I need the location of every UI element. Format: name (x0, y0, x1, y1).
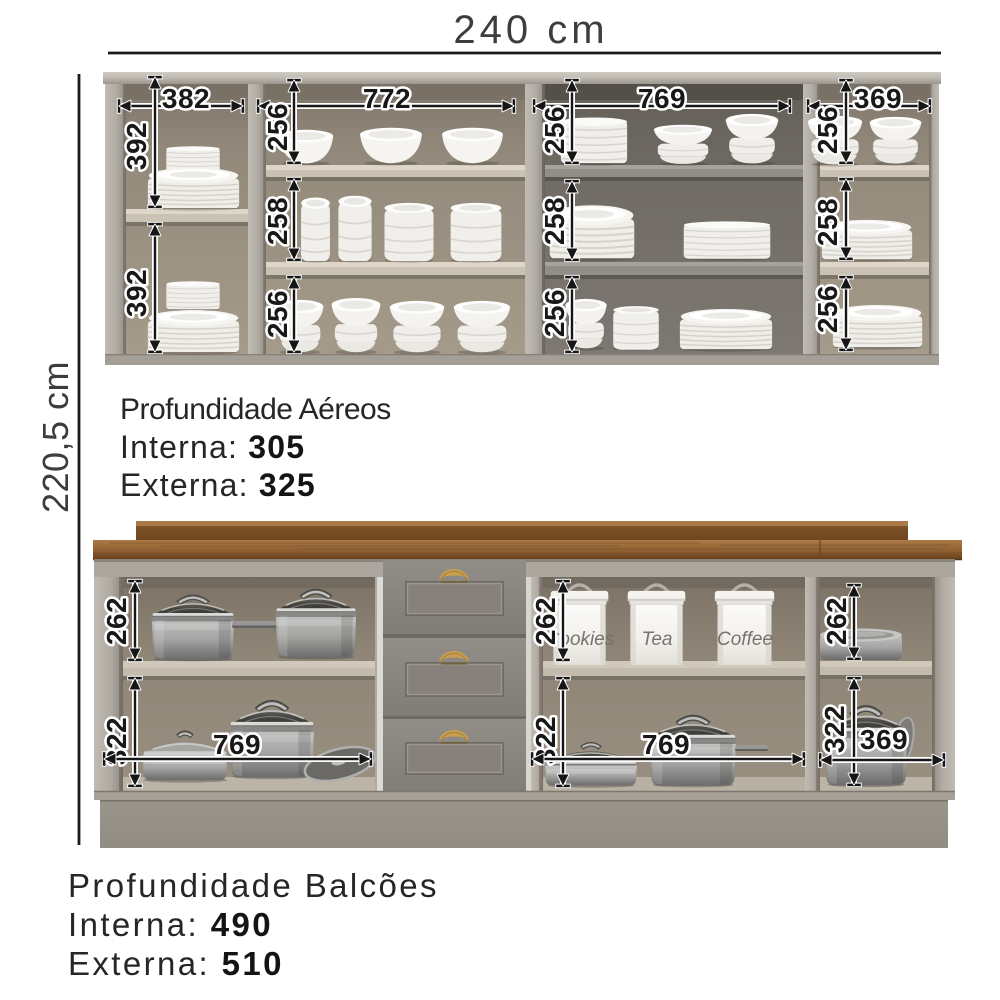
svg-text:382: 382 (162, 83, 210, 114)
svg-text:Tea: Tea (642, 629, 673, 650)
svg-text:322: 322 (819, 705, 850, 753)
svg-text:262: 262 (821, 597, 852, 645)
svg-text:Externa: 325: Externa: 325 (120, 467, 316, 503)
svg-text:769: 769 (642, 729, 690, 760)
svg-text:392: 392 (121, 122, 152, 170)
svg-text:Profundidade Balcões: Profundidade Balcões (68, 867, 439, 904)
svg-text:769: 769 (213, 729, 261, 760)
svg-text:256: 256 (262, 290, 293, 338)
svg-text:Coffee: Coffee (717, 629, 773, 650)
svg-text:Interna: 490: Interna: 490 (68, 906, 273, 943)
svg-text:369: 369 (860, 724, 908, 755)
svg-text:240 cm: 240 cm (453, 8, 608, 52)
svg-text:Externa: 510: Externa: 510 (68, 945, 284, 982)
svg-text:256: 256 (539, 106, 570, 154)
svg-text:262: 262 (101, 597, 132, 645)
svg-text:369: 369 (854, 83, 902, 114)
svg-text:256: 256 (539, 289, 570, 337)
svg-text:220,5 cm: 220,5 cm (35, 361, 76, 513)
svg-text:258: 258 (262, 197, 293, 245)
svg-text:256: 256 (812, 106, 843, 154)
svg-text:256: 256 (812, 285, 843, 333)
svg-text:392: 392 (121, 269, 152, 317)
svg-text:256: 256 (262, 103, 293, 151)
svg-text:258: 258 (812, 198, 843, 246)
svg-text:769: 769 (638, 83, 686, 114)
svg-text:Profundidade Aéreos: Profundidade Aéreos (120, 393, 391, 426)
svg-text:262: 262 (530, 597, 561, 645)
svg-text:772: 772 (363, 83, 411, 114)
svg-text:Interna: 305: Interna: 305 (120, 429, 305, 465)
svg-text:258: 258 (539, 197, 570, 245)
